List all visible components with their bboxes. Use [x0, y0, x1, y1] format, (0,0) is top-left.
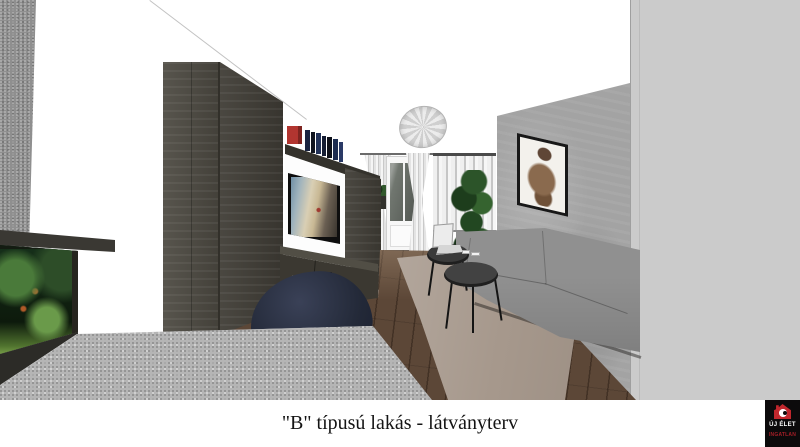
- door-mullion: [403, 163, 405, 221]
- caption-text: "B" típusú lakás - látványterv: [0, 400, 800, 447]
- house-icon-dot: [783, 411, 787, 415]
- book: [327, 137, 332, 158]
- wall-picture-frame: [517, 133, 568, 217]
- caption-band: "B" típusú lakás - látványterv: [0, 400, 800, 447]
- coffee-table-front: [445, 262, 497, 284]
- house-icon: [774, 404, 791, 419]
- ceiling-lamp: [395, 101, 451, 152]
- wardrobe-front: [163, 62, 220, 336]
- wardrobe-door-seam: [191, 62, 192, 336]
- wall-picture-figure: [522, 139, 563, 210]
- book: [322, 136, 326, 156]
- agency-logo: ÚJ ÉLET INGATLAN: [765, 400, 800, 447]
- logo-subtitle: INGATLAN: [765, 432, 800, 438]
- book: [311, 132, 315, 153]
- remote-control: [462, 250, 470, 254]
- render-canvas: "B" típusú lakás - látványterv ÚJ ÉLET I…: [0, 0, 800, 447]
- book: [305, 130, 310, 151]
- red-storage-box: [287, 126, 302, 144]
- aquarium-side-frame: [72, 247, 78, 339]
- logo-title: ÚJ ÉLET: [765, 422, 800, 428]
- left-wall-strip: [0, 0, 36, 250]
- table-leg: [472, 283, 474, 333]
- book: [316, 133, 321, 154]
- house-icon-circle: [779, 409, 787, 417]
- tv-screen: [291, 177, 337, 237]
- book: [339, 142, 343, 162]
- laptop-screen: [432, 223, 453, 248]
- near-right-wall: [630, 0, 800, 400]
- remote-control: [471, 252, 480, 256]
- book: [333, 139, 338, 160]
